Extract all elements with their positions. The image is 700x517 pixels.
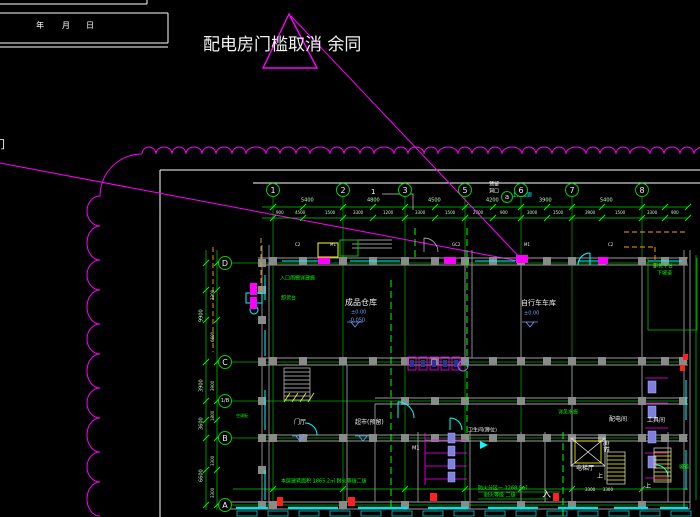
dim-value: 3300 [353,211,363,215]
annotation-label: 入口雨棚详建施 [280,276,315,281]
annotation-label: 详见水施 [558,410,578,415]
grid-bubble-7: 7 [565,183,579,197]
annotation-label: 预留 [489,182,499,187]
dim-value: 6600 [211,332,215,342]
annotation-label: 卫生间(蹲位) [468,428,497,433]
elevator-shaft [571,438,605,466]
grid-bubble-B: B [218,431,232,445]
annotation-label: 自行车车库 [521,300,556,307]
canopy-dashed-lines [213,232,688,352]
dim-value: 6600 [199,469,204,482]
sheet-frame [160,170,700,517]
toilet-partitions [425,378,668,485]
annotation-label: C2 [295,243,300,247]
annotation-label: 卸货台 [281,296,296,301]
grid-bubble-8: 8 [635,183,649,197]
annotation-label: 坡道 [679,465,689,470]
grid-bubble-2: 2 [336,183,350,197]
stair-right-1 [607,452,625,484]
annotation-label: 门 [0,139,5,150]
dim-value: 3900 [539,198,552,203]
dim-value: 4500 [428,198,441,203]
bottom-cyan-boxes [237,511,691,516]
walls [230,245,690,509]
window-lines [246,253,686,500]
annotation-label: M1 [524,243,530,247]
dim-value: 3300 [647,211,657,215]
grid-bubble-aux: a [501,191,513,203]
annotation-label: 本层建筑面积 1865.2㎡ 耐火等级二级 [281,479,367,484]
dim-value: 3000 [527,211,537,215]
dim-value: 1800 [211,411,215,421]
columns [258,257,687,509]
annotation-label: 超市(预留) [355,420,384,426]
dim-value: 900 [500,211,508,215]
grid-bubble-5: 5 [458,183,472,197]
plan-linework [0,0,700,517]
dim-value: 3300 [211,488,215,498]
annotation-label: GC2 [452,243,460,247]
annotation-label: 上 [645,484,651,490]
annotation-label: 卸货平台 [653,264,673,269]
annotation-label: 工具间 [647,418,665,424]
dim-value: 3300 [211,456,215,466]
annotation-label: 年 [36,22,44,30]
annotation-label: 配电房门槛取消 余同 [203,37,361,54]
dim-value: 4800 [367,198,380,203]
annotation-label: 配电间 [609,417,627,423]
grid-bubble-1-B: 1/B [218,394,232,408]
annotation-label: 入 [542,491,551,500]
annotation-label: 3300 3300 [585,488,613,492]
dim-value: 9900 [199,309,204,322]
dim-value: 1500 [325,211,335,215]
dim-value: 3900 [585,211,595,215]
dim-value: 1500 [553,211,563,215]
dim-value: 1500 [615,211,625,215]
grid-bubble-C: C [218,355,232,369]
dim-value: 900 [276,211,284,215]
dim-value: 2700 [473,211,483,215]
grid-bubble-1: 1 [266,183,280,197]
grid-bubble-3: 3 [398,183,412,197]
annotation-label: 下坡道 [657,271,672,276]
annotation-label: ±0.00 [351,310,366,315]
dim-value: 5400 [301,198,314,203]
entry-arrow-icon [480,441,488,449]
elevation-markers [292,322,538,441]
dim-value: 5400 [600,198,613,203]
dim-value: 4200 [486,198,499,203]
annotation-label: 1 [371,189,375,196]
dim-value: 4500 [295,211,305,215]
grid-bubble-6: 6 [514,183,528,197]
annotation-label: M1 [330,243,336,247]
annotation-label: 防火分区一 1268.5㎡ [478,486,527,491]
annotation-label: M1 [412,446,420,451]
grid-bubble-D: D [218,256,232,270]
dim-value: 3900 [199,379,204,392]
title-block-frame [0,0,168,47]
annotation-label: 空调板 [236,414,248,418]
dim-value: 3600 [199,417,204,430]
annotation-label: 电梯厅 [576,466,594,472]
annotation-label: C2 [608,243,613,247]
dim-value: 1500 [445,211,455,215]
dim-value: 1200 [383,211,393,215]
dim-value: 3300 [415,211,425,215]
cad-canvas[interactable]: 配电房门槛取消 余同年月日门1上接连廊预留洞口入口雨棚详建施卸货台成品仓库±0.… [0,0,700,517]
annotation-label: 上 [597,474,603,480]
dim-value: 900 [671,211,679,215]
annotation-label: ±0.00 [524,311,539,316]
annotation-label: 耐火等级 二级 [484,493,516,498]
annotation-label: 电梯 [602,440,608,452]
annotation-label: 月 [62,22,70,30]
annotation-label: 洞口 [489,189,499,194]
dim-value: 3900 [211,381,215,391]
dim-value: 3300 [211,290,215,300]
dimension-ticks [203,204,691,508]
annotation-label: 门厅 [294,420,306,426]
annotation-label: -0.050 [349,318,365,323]
annotation-label: 日 [86,22,94,30]
annotation-label: 成品仓库 [345,299,377,307]
grid-bubble-A: A [218,498,232,512]
expansion-joint-lines [391,228,563,517]
